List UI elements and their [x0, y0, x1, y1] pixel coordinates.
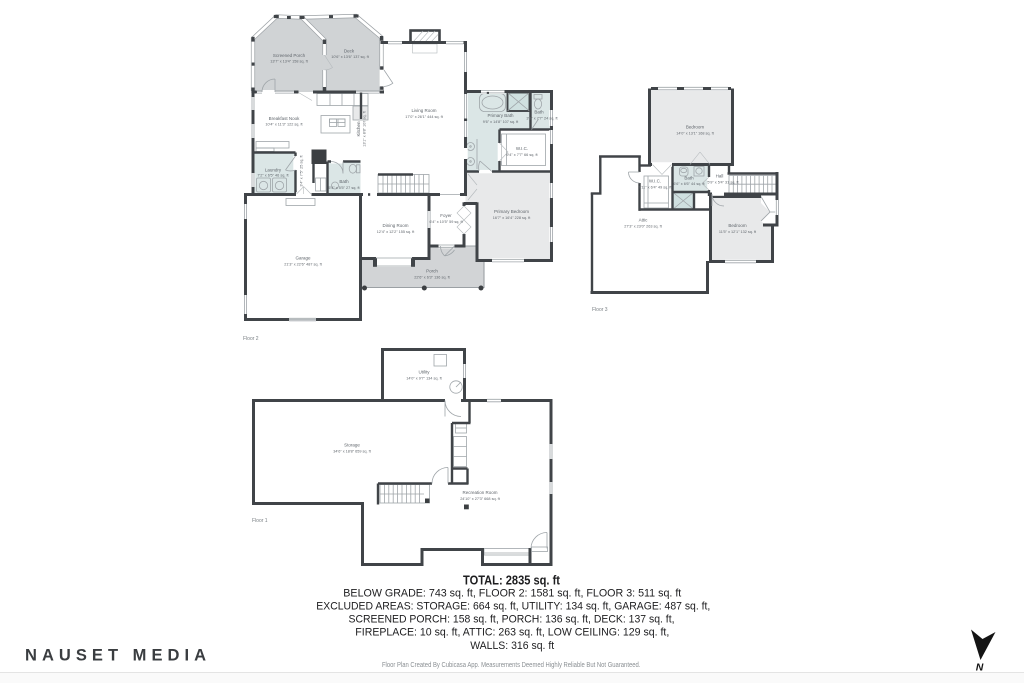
- svg-text:N: N: [976, 662, 984, 674]
- svg-text:Kitchen: Kitchen: [356, 121, 361, 137]
- svg-text:Floor 2: Floor 2: [243, 336, 259, 342]
- svg-text:11'5" x 12'1" 132 sq. ft: 11'5" x 12'1" 132 sq. ft: [719, 230, 757, 234]
- svg-text:Primary Bedroom: Primary Bedroom: [494, 209, 529, 214]
- svg-text:5'9" x 5'4" 31 sq. ft: 5'9" x 5'4" 31 sq. ft: [707, 180, 739, 184]
- svg-text:Floor 1: Floor 1: [252, 518, 268, 524]
- svg-text:Storage: Storage: [344, 443, 360, 448]
- svg-text:Utility: Utility: [419, 370, 431, 375]
- svg-text:9'4" x 7'7" 66 sq. ft: 9'4" x 7'7" 66 sq. ft: [506, 153, 538, 157]
- svg-text:Laundry: Laundry: [265, 168, 282, 173]
- svg-text:3'8" x 7'7" 24 sq. ft: 3'8" x 7'7" 24 sq. ft: [526, 117, 558, 121]
- svg-text:13'1" x 8'8" 107 sq. ft: 13'1" x 8'8" 107 sq. ft: [363, 110, 367, 146]
- svg-text:14'0" x 13'1" 168 sq. ft: 14'0" x 13'1" 168 sq. ft: [676, 131, 714, 135]
- svg-text:Bedroom: Bedroom: [728, 223, 747, 228]
- svg-text:FIREPLACE: 10 sq. ft, ATTIC: 2: FIREPLACE: 10 sq. ft, ATTIC: 263 sq. ft,…: [355, 627, 669, 639]
- svg-text:Garage: Garage: [295, 256, 311, 261]
- svg-text:BELOW GRADE: 743 sq. ft, FLOOR: BELOW GRADE: 743 sq. ft, FLOOR 2: 1581 s…: [343, 587, 682, 599]
- svg-text:21'3" x 22'6" 487 sq. ft: 21'3" x 22'6" 487 sq. ft: [284, 263, 322, 267]
- svg-text:6'6" x 6'6" 44 sq. ft: 6'6" x 6'6" 44 sq. ft: [673, 182, 705, 186]
- svg-text:W.I.C.: W.I.C.: [649, 179, 661, 184]
- svg-text:34'6" x 18'8" 659 sq. ft: 34'6" x 18'8" 659 sq. ft: [333, 450, 371, 454]
- svg-text:5'4" x 5'5" 27 sq. ft: 5'4" x 5'5" 27 sq. ft: [328, 186, 360, 190]
- svg-text:WALLS: 316 sq. ft: WALLS: 316 sq. ft: [470, 640, 555, 652]
- svg-text:Recreation Room: Recreation Room: [462, 490, 497, 495]
- svg-text:14'0" x 9'7" 134 sq. ft: 14'0" x 9'7" 134 sq. ft: [406, 376, 442, 380]
- svg-text:Living Room: Living Room: [411, 108, 436, 113]
- svg-text:12'4" x 12'2" 155 sq. ft: 12'4" x 12'2" 155 sq. ft: [377, 230, 415, 234]
- svg-text:3'4" x 7'5" 25 sq. ft: 3'4" x 7'5" 25 sq. ft: [300, 154, 304, 186]
- svg-text:NAUSET MEDIA: NAUSET MEDIA: [25, 647, 210, 665]
- svg-text:10'4" x 11'3" 122 sq. ft: 10'4" x 11'3" 122 sq. ft: [265, 123, 303, 127]
- svg-text:W.I.C.: W.I.C.: [516, 146, 528, 151]
- svg-text:17'0" x 26'1" 444 sq. ft: 17'0" x 26'1" 444 sq. ft: [405, 115, 443, 119]
- svg-text:Screened Porch: Screened Porch: [273, 53, 306, 58]
- svg-text:Bath: Bath: [684, 175, 694, 180]
- svg-text:Breakfast Nook: Breakfast Nook: [269, 116, 301, 121]
- svg-text:Attic: Attic: [639, 218, 649, 223]
- svg-text:Foyer: Foyer: [440, 213, 452, 218]
- svg-text:Floor Plan Created By Cubicasa: Floor Plan Created By Cubicasa App. Meas…: [382, 662, 641, 669]
- svg-text:16'7" x 16'4" 228 sq. ft: 16'7" x 16'4" 228 sq. ft: [493, 216, 531, 220]
- svg-text:EXCLUDED AREAS: STORAGE: 664 s: EXCLUDED AREAS: STORAGE: 664 sq. ft, UTI…: [316, 601, 710, 613]
- svg-text:6'4" x 10'5" 59 sq. ft: 6'4" x 10'5" 59 sq. ft: [429, 220, 463, 224]
- svg-text:9'6" x 14'8" 107 sq. ft: 9'6" x 14'8" 107 sq. ft: [483, 120, 519, 124]
- svg-text:Bath: Bath: [339, 179, 349, 184]
- svg-text:Floor 3: Floor 3: [592, 307, 608, 313]
- svg-text:Hall: Hall: [716, 173, 724, 178]
- svg-text:Deck: Deck: [344, 49, 355, 54]
- svg-text:SCREENED PORCH: 158 sq. ft, PO: SCREENED PORCH: 158 sq. ft, PORCH: 136 s…: [349, 614, 675, 626]
- svg-text:Bedroom: Bedroom: [686, 125, 705, 130]
- svg-text:27'3" x 23'0" 263 sq. ft: 27'3" x 23'0" 263 sq. ft: [624, 225, 662, 229]
- svg-text:TOTAL: 2835 sq. ft: TOTAL: 2835 sq. ft: [463, 574, 561, 588]
- svg-text:Primary Bath: Primary Bath: [487, 113, 514, 118]
- svg-text:Bath: Bath: [534, 110, 544, 115]
- svg-text:13'7" x 13'4" 158 sq. ft: 13'7" x 13'4" 158 sq. ft: [270, 59, 308, 63]
- svg-text:Porch: Porch: [426, 269, 438, 274]
- svg-text:24'10" x 27'3" 668 sq. ft: 24'10" x 27'3" 668 sq. ft: [460, 497, 501, 501]
- svg-text:7'2" x 6'5" 46 sq. ft: 7'2" x 6'5" 46 sq. ft: [257, 174, 289, 178]
- svg-text:10'6" x 13'6" 137 sq. ft: 10'6" x 13'6" 137 sq. ft: [331, 55, 369, 59]
- svg-text:22'6" x 6'3" 136 sq. ft: 22'6" x 6'3" 136 sq. ft: [414, 276, 450, 280]
- svg-text:7'11" x 6'4" 49 sq. ft: 7'11" x 6'4" 49 sq. ft: [639, 185, 673, 189]
- svg-text:Dining Room: Dining Room: [382, 223, 408, 228]
